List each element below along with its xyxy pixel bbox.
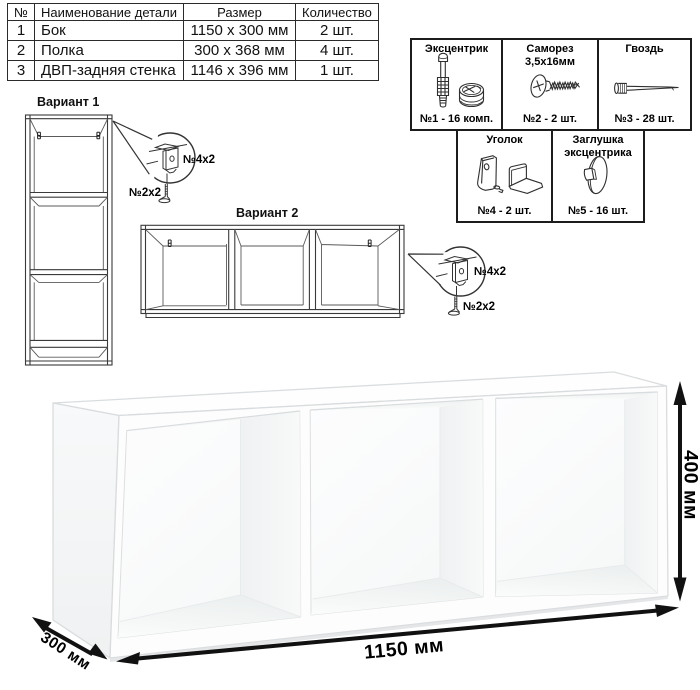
svg-text:1150 мм: 1150 мм — [363, 634, 445, 664]
svg-text:400 мм: 400 мм — [680, 450, 700, 520]
